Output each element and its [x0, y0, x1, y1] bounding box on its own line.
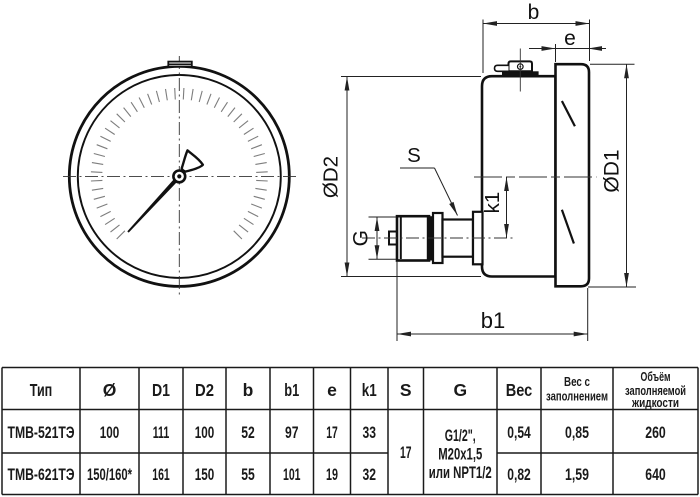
svg-text:ТМВ-521ТЭ: ТМВ-521ТЭ: [8, 423, 75, 442]
svg-text:260: 260: [645, 423, 666, 442]
svg-text:Вес с: Вес с: [564, 374, 590, 389]
svg-text:ØD1: ØD1: [601, 149, 624, 192]
svg-text:17: 17: [326, 423, 338, 442]
svg-text:G1/2",: G1/2",: [445, 426, 476, 445]
svg-text:e: e: [564, 27, 576, 50]
svg-text:100: 100: [100, 423, 120, 442]
svg-text:Тип: Тип: [30, 380, 53, 400]
svg-text:640: 640: [645, 465, 666, 484]
svg-text:Ø: Ø: [103, 380, 117, 400]
svg-text:G: G: [350, 230, 373, 246]
svg-text:жидкости: жидкости: [631, 395, 679, 410]
svg-text:150: 150: [195, 465, 215, 484]
svg-text:S: S: [400, 380, 412, 400]
svg-text:33: 33: [363, 423, 377, 442]
svg-text:b: b: [243, 380, 254, 400]
svg-text:111: 111: [153, 423, 170, 442]
svg-text:S: S: [407, 144, 421, 167]
svg-text:или NPT1/2: или NPT1/2: [429, 463, 492, 482]
svg-text:150/160*: 150/160*: [87, 465, 132, 484]
svg-text:161: 161: [152, 465, 170, 484]
svg-text:b1: b1: [481, 308, 505, 333]
svg-text:D1: D1: [152, 380, 170, 400]
svg-text:k1: k1: [362, 380, 377, 400]
svg-text:b1: b1: [284, 380, 299, 400]
svg-text:52: 52: [241, 423, 255, 442]
svg-text:k1: k1: [481, 192, 504, 214]
svg-text:ØD2: ØD2: [320, 156, 343, 198]
svg-text:17: 17: [400, 443, 412, 462]
svg-text:заполнением: заполнением: [546, 389, 608, 404]
svg-text:55: 55: [241, 465, 255, 484]
svg-text:97: 97: [285, 423, 299, 442]
svg-text:1,59: 1,59: [565, 465, 589, 484]
svg-text:32: 32: [363, 465, 377, 484]
svg-text:0,85: 0,85: [565, 423, 589, 442]
svg-text:Объём: Объём: [641, 369, 671, 384]
svg-text:G: G: [453, 380, 467, 400]
svg-text:Вес: Вес: [506, 380, 533, 400]
svg-text:101: 101: [283, 465, 301, 484]
svg-text:e: e: [327, 380, 337, 400]
svg-text:0,54: 0,54: [507, 423, 531, 442]
svg-text:D2: D2: [195, 380, 214, 400]
svg-text:ТМВ-621ТЭ: ТМВ-621ТЭ: [8, 465, 75, 484]
svg-text:M20x1,5: M20x1,5: [438, 445, 482, 464]
svg-text:0,82: 0,82: [507, 465, 531, 484]
svg-text:b: b: [528, 1, 540, 24]
svg-text:19: 19: [326, 465, 338, 484]
svg-text:100: 100: [195, 423, 215, 442]
